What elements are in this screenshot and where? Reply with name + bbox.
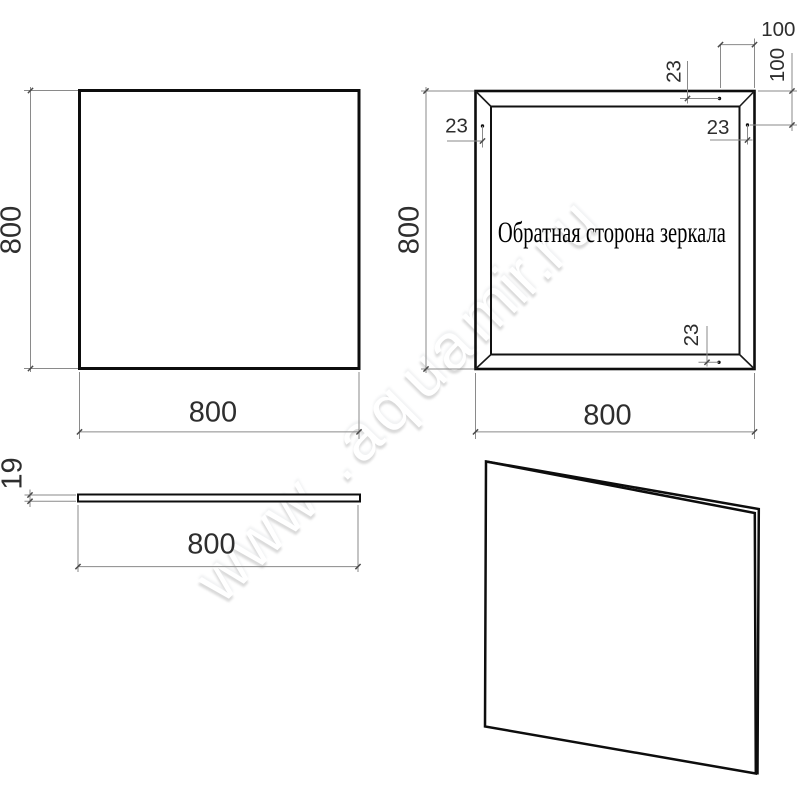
svg-text:19: 19 [0, 457, 29, 489]
svg-text:100: 100 [761, 18, 795, 41]
svg-text:800: 800 [394, 206, 426, 254]
svg-text:23: 23 [707, 116, 730, 139]
svg-text:800: 800 [187, 529, 235, 561]
svg-text:Обратная сторона зеркала: Обратная сторона зеркала [498, 217, 726, 249]
svg-text:800: 800 [0, 206, 28, 254]
svg-text:23: 23 [663, 60, 686, 83]
svg-text:800: 800 [189, 397, 237, 429]
svg-text:23: 23 [445, 115, 468, 138]
svg-text:800: 800 [583, 400, 631, 432]
svg-text:23: 23 [680, 324, 703, 347]
svg-text:100: 100 [766, 48, 789, 82]
